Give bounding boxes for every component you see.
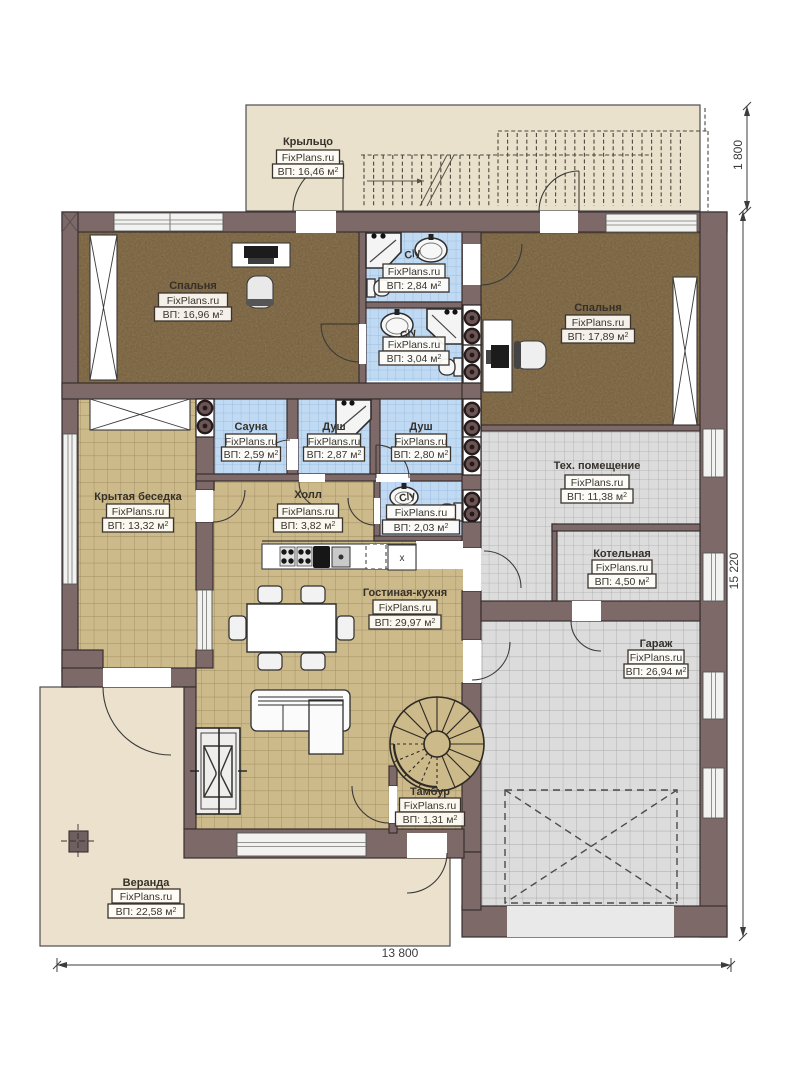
svg-text:ВП: 17,89 м2: ВП: 17,89 м2 [568, 331, 629, 343]
svg-text:ВП: 4,50 м2: ВП: 4,50 м2 [595, 576, 650, 588]
svg-text:FixPlans.ru: FixPlans.ru [395, 507, 448, 519]
svg-text:15 220: 15 220 [727, 552, 741, 589]
svg-text:Тамбур: Тамбур [410, 786, 450, 798]
svg-text:FixPlans.ru: FixPlans.ru [388, 266, 441, 278]
svg-text:ВП: 22,58 м2: ВП: 22,58 м2 [116, 906, 177, 918]
svg-text:Веранда: Веранда [123, 877, 171, 889]
svg-text:Тех. помещение: Тех. помещение [554, 460, 641, 472]
svg-text:FixPlans.ru: FixPlans.ru [404, 800, 457, 812]
svg-text:ВП: 2,84 м2: ВП: 2,84 м2 [387, 280, 442, 292]
svg-text:Душ: Душ [322, 421, 345, 433]
svg-text:Душ: Душ [409, 421, 432, 433]
svg-text:FixPlans.ru: FixPlans.ru [572, 317, 625, 329]
svg-text:ВП: 16,96 м2: ВП: 16,96 м2 [163, 309, 224, 321]
svg-text:ВП: 26,94 м2: ВП: 26,94 м2 [626, 666, 687, 678]
svg-text:FixPlans.ru: FixPlans.ru [630, 652, 683, 664]
svg-text:Спальня: Спальня [169, 280, 217, 292]
svg-text:ВП: 2,03 м2: ВП: 2,03 м2 [394, 522, 449, 534]
svg-text:Крыльцо: Крыльцо [283, 136, 333, 148]
svg-text:Котельная: Котельная [593, 548, 651, 560]
svg-text:Гостиная-кухня: Гостиная-кухня [363, 587, 447, 599]
svg-text:ВП: 1,31 м2: ВП: 1,31 м2 [403, 814, 458, 826]
svg-text:Гараж: Гараж [640, 638, 673, 650]
svg-text:Крытая беседка: Крытая беседка [94, 491, 182, 503]
svg-text:ВП: 13,32 м2: ВП: 13,32 м2 [108, 520, 169, 532]
svg-text:FixPlans.ru: FixPlans.ru [571, 477, 624, 489]
svg-text:FixPlans.ru: FixPlans.ru [112, 506, 165, 518]
svg-text:1 800: 1 800 [731, 140, 745, 170]
svg-text:ВП: 16,46 м2: ВП: 16,46 м2 [278, 166, 339, 178]
svg-text:13 800: 13 800 [382, 946, 419, 960]
svg-text:FixPlans.ru: FixPlans.ru [395, 436, 448, 448]
svg-text:FixPlans.ru: FixPlans.ru [225, 436, 278, 448]
svg-text:FixPlans.ru: FixPlans.ru [120, 891, 173, 903]
svg-text:ВП: 3,04 м2: ВП: 3,04 м2 [387, 353, 442, 365]
svg-text:x: x [400, 553, 405, 564]
svg-text:ВП: 2,80 м2: ВП: 2,80 м2 [394, 449, 449, 461]
svg-text:Холл: Холл [294, 489, 322, 501]
svg-text:ВП: 3,82 м2: ВП: 3,82 м2 [281, 520, 336, 532]
svg-text:FixPlans.ru: FixPlans.ru [167, 295, 220, 307]
svg-text:Сауна: Сауна [234, 421, 268, 433]
svg-text:ВП: 29,97 м2: ВП: 29,97 м2 [375, 617, 436, 629]
svg-text:ВП: 11,38 м2: ВП: 11,38 м2 [567, 491, 627, 503]
svg-text:FixPlans.ru: FixPlans.ru [388, 339, 441, 351]
svg-text:FixPlans.ru: FixPlans.ru [282, 152, 335, 164]
svg-text:Спальня: Спальня [574, 302, 622, 314]
svg-text:FixPlans.ru: FixPlans.ru [379, 602, 432, 614]
svg-text:FixPlans.ru: FixPlans.ru [596, 562, 649, 574]
svg-text:FixPlans.ru: FixPlans.ru [282, 506, 335, 518]
svg-text:FixPlans.ru: FixPlans.ru [308, 436, 361, 448]
svg-text:ВП: 2,59 м2: ВП: 2,59 м2 [224, 449, 279, 461]
svg-text:ВП: 2,87 м2: ВП: 2,87 м2 [307, 449, 362, 461]
